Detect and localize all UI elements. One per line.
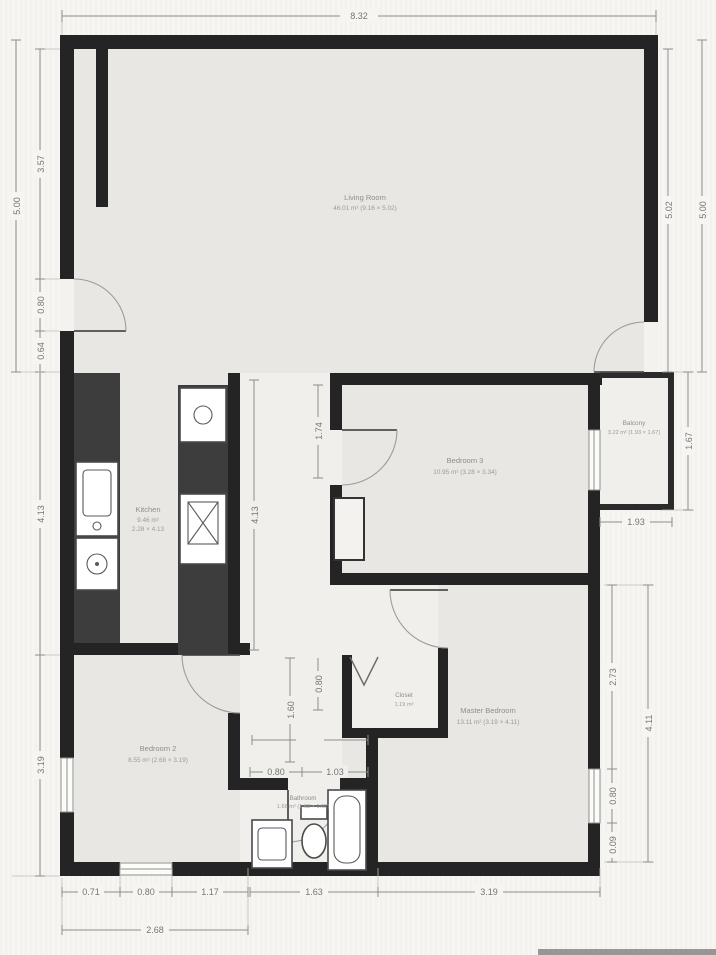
svg-text:Master Bedroom: Master Bedroom [460, 706, 515, 715]
dim-master-window: 0.80 [606, 769, 618, 823]
svg-text:13.11 m² (3.19 × 4.11): 13.11 m² (3.19 × 4.11) [457, 719, 519, 726]
scan-artifact [538, 949, 716, 955]
svg-text:0.80: 0.80 [137, 887, 155, 897]
svg-text:Balcony: Balcony [623, 420, 647, 427]
wall-closet-left [342, 655, 352, 738]
svg-text:4.11: 4.11 [644, 715, 654, 732]
dim-left-kitchen: 4.13 [34, 373, 46, 655]
svg-text:0.64: 0.64 [36, 342, 46, 360]
svg-text:1.66 m² (1.63 × 1.02): 1.66 m² (1.63 × 1.02) [277, 804, 330, 810]
wall-master-right-lower [588, 823, 600, 876]
wall-living-stub [96, 49, 108, 207]
svg-text:1.74: 1.74 [314, 422, 324, 440]
svg-text:8.32: 8.32 [350, 11, 368, 21]
dim-left-entry: 0.80 [34, 279, 46, 331]
wall-bottom-left [60, 862, 120, 876]
dim-bottom-b2-total: 2.68 [62, 923, 248, 935]
floor-plan: 8.32 1.93 1.63 3.19 0.71 [0, 0, 716, 955]
wall-balcony-right [668, 372, 674, 510]
svg-text:5.02: 5.02 [664, 201, 674, 219]
wall-master-right-upper [588, 585, 600, 769]
svg-text:Bedroom 2: Bedroom 2 [140, 744, 177, 753]
svg-text:Living Room: Living Room [344, 193, 386, 202]
svg-text:3.19: 3.19 [480, 887, 498, 897]
dim-balcony-height: 1.67 [682, 372, 694, 510]
dim-master-seg1: 2.73 [606, 585, 618, 769]
entry-opening [60, 279, 74, 331]
wall-right-living [644, 35, 658, 322]
wall-bath-right [366, 738, 378, 876]
svg-text:3.19: 3.19 [36, 756, 46, 774]
svg-text:2.73: 2.73 [608, 668, 618, 686]
dim-bottom-b2-seg1: 0.71 [62, 885, 120, 897]
wall-bottom-main [172, 862, 600, 876]
wall-top [60, 35, 658, 49]
dim-bottom-master: 3.19 [378, 885, 600, 897]
dim-master-height: 4.11 [642, 585, 654, 862]
svg-text:3.57: 3.57 [36, 155, 46, 173]
bath-door-gap-floor [288, 778, 340, 790]
svg-text:Bathroom: Bathroom [290, 795, 317, 802]
dim-master-seg3: 0.09 [606, 823, 618, 862]
toilet-bowl [302, 824, 326, 858]
svg-text:4.13: 4.13 [36, 505, 46, 523]
svg-text:1.63: 1.63 [305, 887, 323, 897]
dim-left-seg3: 0.64 [34, 331, 46, 372]
svg-text:Closet: Closet [395, 692, 413, 699]
svg-text:10.95 m² (3.28 × 3.34): 10.95 m² (3.28 × 3.34) [433, 469, 496, 476]
svg-text:9.46 m²: 9.46 m² [137, 517, 159, 524]
svg-text:1.17: 1.17 [201, 887, 219, 897]
wall-bath-top-left [228, 778, 288, 790]
dim-bottom-bath: 1.63 [250, 885, 378, 897]
kitchen-sink-left [76, 462, 118, 536]
duct-shaft [334, 498, 364, 560]
wall-bed2-right [228, 713, 240, 778]
svg-text:5.00: 5.00 [698, 201, 708, 219]
wall-closet-bottom [342, 728, 448, 738]
svg-text:2.68: 2.68 [146, 925, 164, 935]
dim-bottom-b2-seg3: 1.17 [172, 885, 248, 897]
svg-text:1.93: 1.93 [627, 517, 645, 527]
svg-text:1.19 m²: 1.19 m² [395, 702, 414, 708]
dim-bottom-b2-window: 0.80 [120, 885, 172, 897]
svg-text:0.80: 0.80 [608, 787, 618, 805]
svg-text:2.28 × 4.13: 2.28 × 4.13 [132, 526, 165, 533]
svg-text:1.60: 1.60 [286, 701, 296, 719]
svg-text:3.22 m² (1.93 × 1.67): 3.22 m² (1.93 × 1.67) [608, 430, 661, 436]
dim-left-seg1: 3.57 [34, 49, 46, 279]
svg-text:46.01 m² (9.16 × 5.02): 46.01 m² (9.16 × 5.02) [333, 205, 396, 212]
wall-balcony-bottom [600, 504, 674, 510]
svg-text:0.80: 0.80 [267, 767, 285, 777]
kitchen-appliance-top [180, 388, 226, 442]
dim-left-total: 5.00 [10, 40, 22, 372]
svg-text:0.80: 0.80 [314, 675, 324, 693]
wall-left-upper [60, 49, 74, 279]
svg-text:8.55 m² (2.68 × 3.19): 8.55 m² (2.68 × 3.19) [128, 757, 188, 764]
balcony-floor [600, 378, 668, 504]
dim-balcony-width: 1.93 [600, 515, 672, 527]
dim-top-width: 8.32 [62, 9, 656, 22]
wall-bed3-right-lower [588, 490, 600, 585]
dim-right-living-outer: 5.00 [696, 40, 708, 372]
balcony-door-opening [644, 322, 658, 372]
kitchen-sink-right [180, 494, 226, 564]
wall-bed3-right-upper [588, 373, 600, 430]
hall-closet-floor [342, 585, 438, 728]
svg-text:1.67: 1.67 [684, 432, 694, 450]
svg-text:0.71: 0.71 [82, 887, 100, 897]
dim-left-bedroom2: 3.19 [34, 655, 46, 876]
wall-closet-right [438, 648, 448, 738]
svg-text:4.13: 4.13 [250, 506, 260, 524]
wall-left-mid [60, 331, 74, 758]
svg-text:Kitchen: Kitchen [135, 505, 160, 514]
svg-text:0.80: 0.80 [36, 296, 46, 314]
wall-bed3-master [330, 573, 600, 585]
wall-living-bed3 [330, 373, 602, 385]
wall-kitchen-corridor [228, 373, 240, 655]
wall-bed3-left-upper [330, 385, 342, 430]
dim-right-living-inner: 5.02 [662, 49, 674, 372]
svg-text:1.03: 1.03 [326, 767, 344, 777]
svg-text:5.00: 5.00 [12, 197, 22, 215]
svg-text:0.09: 0.09 [608, 836, 618, 854]
svg-text:Bedroom 3: Bedroom 3 [447, 456, 484, 465]
